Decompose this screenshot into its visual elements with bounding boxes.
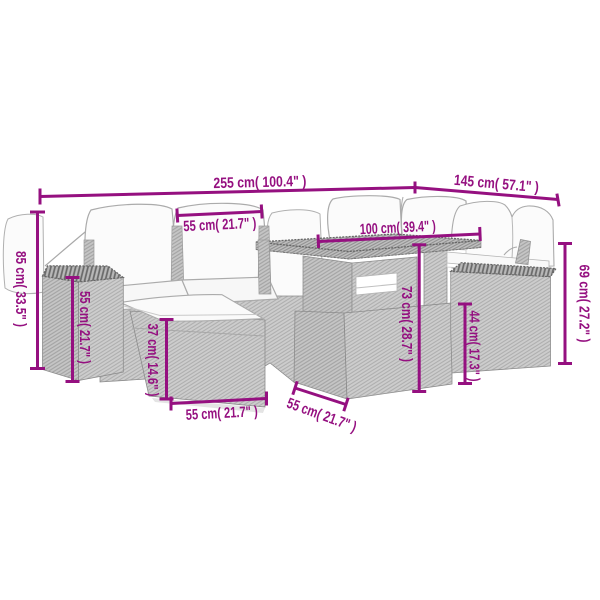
svg-text:55 cm( 21.7" ): 55 cm( 21.7" ): [76, 291, 93, 364]
svg-text:100 cm( 39.4" ): 100 cm( 39.4" ): [359, 218, 436, 239]
svg-text:85 cm( 33.5" ): 85 cm( 33.5" ): [12, 251, 29, 327]
svg-text:37 cm( 14.6" ): 37 cm( 14.6" ): [144, 324, 161, 397]
svg-text:255 cm( 100.4" ): 255 cm( 100.4" ): [213, 173, 306, 192]
svg-text:73 cm( 28.7" ): 73 cm( 28.7" ): [398, 286, 415, 362]
svg-text:55 cm( 21.7" ): 55 cm( 21.7" ): [183, 215, 257, 235]
svg-text:44 cm( 17.3" ): 44 cm( 17.3" ): [466, 311, 483, 382]
svg-text:69 cm( 27.2" ): 69 cm( 27.2" ): [576, 265, 593, 343]
